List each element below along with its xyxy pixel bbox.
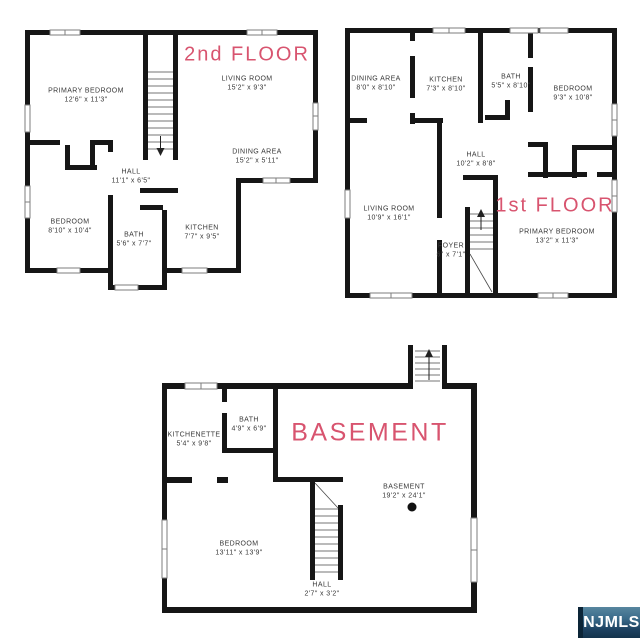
room-dims: 5'4" x 9'8" [167,440,220,449]
room-name: KITCHEN [426,77,465,86]
room-label-bath-2f: BATH 5'6" x 7'7" [116,232,151,249]
room-dims: 7'7" x 9'5" [184,233,219,242]
basement-plan [162,345,477,613]
room-name: DINING AREA [232,149,282,158]
basement-title: BASEMENT [291,419,449,448]
bulkhead-up-arrow [425,349,433,357]
room-name: HALL [304,582,339,591]
room-dims: 15'2" x 5'11" [232,157,282,166]
room-label-living-room-2f: LIVING ROOM 15'2" x 9'3" [221,76,272,93]
second-floor-stairs [148,72,173,156]
room-dims: 9'3" x 10'8" [553,94,592,103]
room-label-basement-room: BASEMENT 19'2" x 24'1" [382,484,426,501]
room-name: LIVING ROOM [221,76,272,85]
room-label-living-room-1f: LIVING ROOM 10'9" x 16'1" [363,206,414,223]
support-post-dot [408,503,417,512]
room-dims: 2'7" x 3'2" [304,590,339,599]
room-label-bedroom-bsmt: BEDROOM 13'11" x 13'9" [215,541,262,558]
room-dims: 19'2" x 24'1" [382,492,426,501]
room-name: FOYER [437,243,466,252]
stairs-down-arrow [157,148,165,156]
room-label-bedroom-1f: BEDROOM 9'3" x 10'8" [553,86,592,103]
room-label-kitchenette-bsmt: KITCHENETTE 5'4" x 9'8" [167,432,220,449]
room-name: DINING AREA [351,76,401,85]
first-floor-stairs [470,209,493,292]
room-name: KITCHEN [184,225,219,234]
floorplan-canvas: 2nd FLOOR 1st FLOOR BASEMENT PRIMARY BED… [0,0,640,640]
room-dims: 13'2" x 11'3" [519,237,595,246]
room-name: BATH [491,74,530,83]
room-label-hall-1f: HALL 10'2" x 8'8" [456,152,495,169]
room-name: PRIMARY BEDROOM [519,229,595,238]
room-label-hall-bsmt: HALL 2'7" x 3'2" [304,582,339,599]
room-label-bath-1f: BATH 5'5" x 8'10" [491,74,530,91]
basement-windows [162,383,477,582]
first-floor-title: 1st FLOOR [495,195,614,218]
bulkhead-stairs [415,349,440,381]
room-dims: 13'11" x 13'9" [215,549,262,558]
room-label-dining-area-1f: DINING AREA 8'0" x 8'10" [351,76,401,93]
room-label-bath-bsmt: BATH 4'9" x 6'9" [231,417,266,434]
room-dims: 10'2" x 8'8" [456,160,495,169]
room-label-foyer-1f: FOYER 6" x 7'1" [437,243,466,260]
room-name: BEDROOM [48,219,92,228]
njmls-logo: NJMLS [578,607,640,638]
room-dims: 15'2" x 9'3" [221,84,272,93]
room-name: BATH [116,232,151,241]
room-name: BATH [231,417,266,426]
room-name: KITCHENETTE [167,432,220,441]
room-label-primary-bedroom-2f: PRIMARY BEDROOM 12'6" x 11'3" [48,88,124,105]
room-dims: 7'3" x 8'10" [426,85,465,94]
room-dims: 6" x 7'1" [437,251,466,260]
room-label-dining-area-2f: DINING AREA 15'2" x 5'11" [232,149,282,166]
room-dims: 4'9" x 6'9" [231,425,266,434]
room-label-kitchen-2f: KITCHEN 7'7" x 9'5" [184,225,219,242]
room-name: BEDROOM [215,541,262,550]
room-name: HALL [456,152,495,161]
basement-stairs [315,483,338,572]
room-dims: 10'9" x 16'1" [363,214,414,223]
room-label-primary-bedroom-1f: PRIMARY BEDROOM 13'2" x 11'3" [519,229,595,246]
room-name: HALL [112,169,151,178]
room-name: PRIMARY BEDROOM [48,88,124,97]
stairs-up-arrow [477,209,485,217]
room-dims: 5'5" x 8'10" [491,82,530,91]
room-name: BASEMENT [382,484,426,493]
room-label-hall-2f: HALL 11'1" x 6'5" [112,169,151,186]
room-dims: 12'6" x 11'3" [48,96,124,105]
second-floor-title: 2nd FLOOR [184,44,310,67]
room-name: BEDROOM [553,86,592,95]
room-label-kitchen-1f: KITCHEN 7'3" x 8'10" [426,77,465,94]
room-dims: 8'0" x 8'10" [351,84,401,93]
njmls-logo-text: NJMLS [583,614,640,632]
room-label-bedroom-2f: BEDROOM 8'10" x 10'4" [48,219,92,236]
room-dims: 5'6" x 7'7" [116,240,151,249]
room-dims: 8'10" x 10'4" [48,227,92,236]
room-dims: 11'1" x 6'5" [112,177,151,186]
room-name: LIVING ROOM [363,206,414,215]
